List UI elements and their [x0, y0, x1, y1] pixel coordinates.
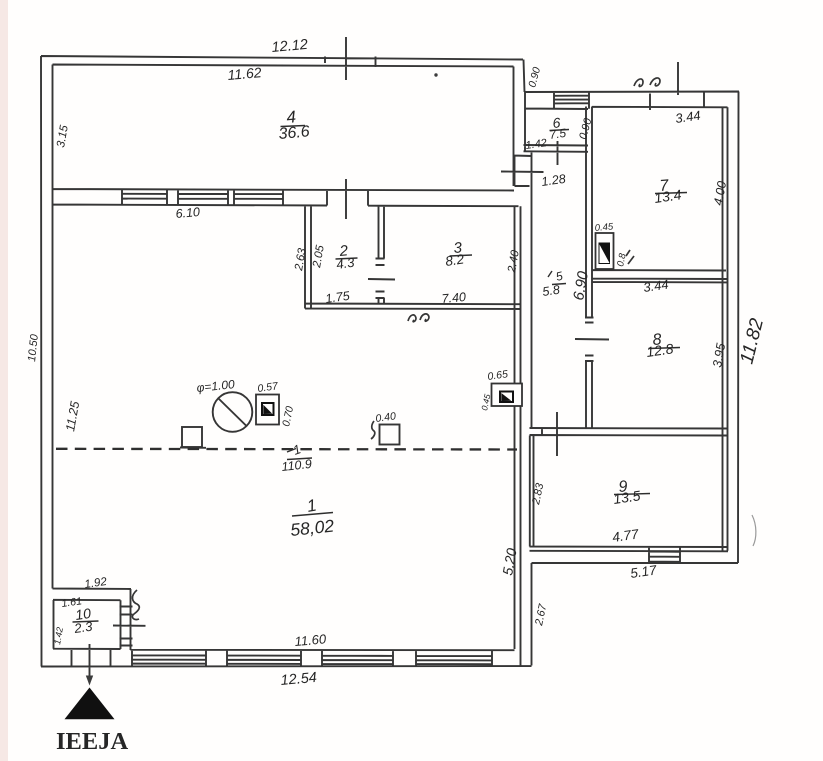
- svg-text:12.54: 12.54: [280, 670, 318, 689]
- svg-text:11.62: 11.62: [227, 64, 262, 83]
- svg-text:11.60: 11.60: [294, 631, 328, 649]
- svg-text:IEEJA: IEEJA: [56, 728, 128, 755]
- svg-text:2.3: 2.3: [72, 618, 94, 636]
- svg-text:36.6: 36.6: [278, 123, 311, 143]
- svg-text:8.2: 8.2: [444, 251, 465, 269]
- svg-text:7.40: 7.40: [441, 290, 467, 306]
- svg-text:7.5: 7.5: [548, 126, 567, 142]
- svg-text:5.8: 5.8: [541, 283, 560, 299]
- svg-text:0.45: 0.45: [594, 221, 614, 234]
- svg-text:12.12: 12.12: [271, 37, 309, 56]
- svg-text:6.10: 6.10: [175, 205, 201, 221]
- svg-text:4.3: 4.3: [335, 254, 356, 271]
